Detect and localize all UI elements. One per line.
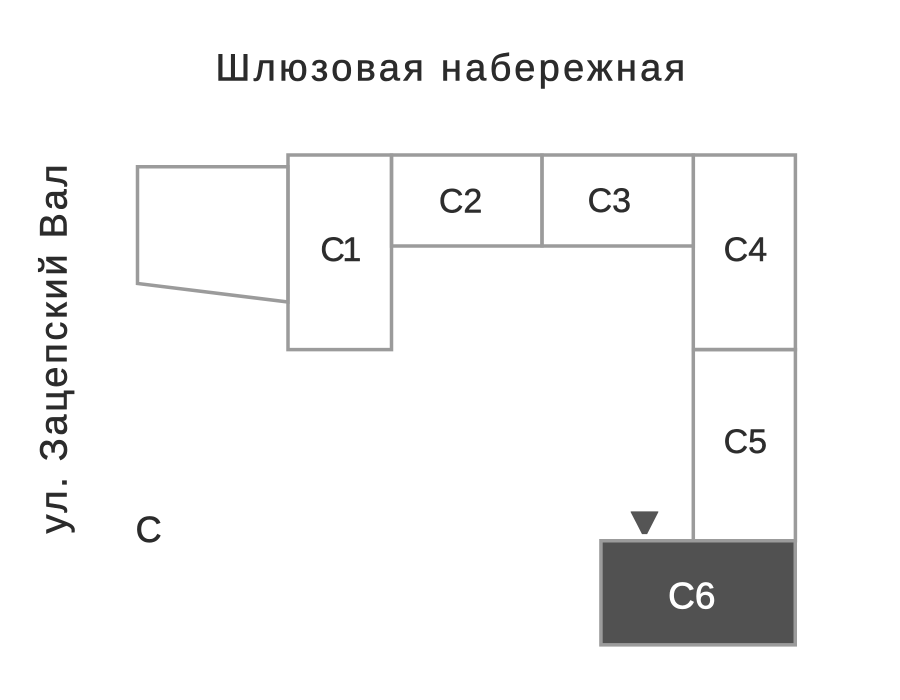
svg-text:С4: С4 <box>724 231 767 269</box>
svg-text:С: С <box>136 509 162 550</box>
svg-text:Шлюзовая набережная: Шлюзовая набережная <box>216 48 689 90</box>
svg-text:С1: С1 <box>320 231 360 269</box>
svg-text:С3: С3 <box>588 182 631 220</box>
svg-text:ул. Зацепский Вал: ул. Зацепский Вал <box>34 162 76 534</box>
svg-text:С6: С6 <box>668 576 715 617</box>
svg-text:С5: С5 <box>724 423 767 461</box>
svg-text:С2: С2 <box>439 183 482 221</box>
